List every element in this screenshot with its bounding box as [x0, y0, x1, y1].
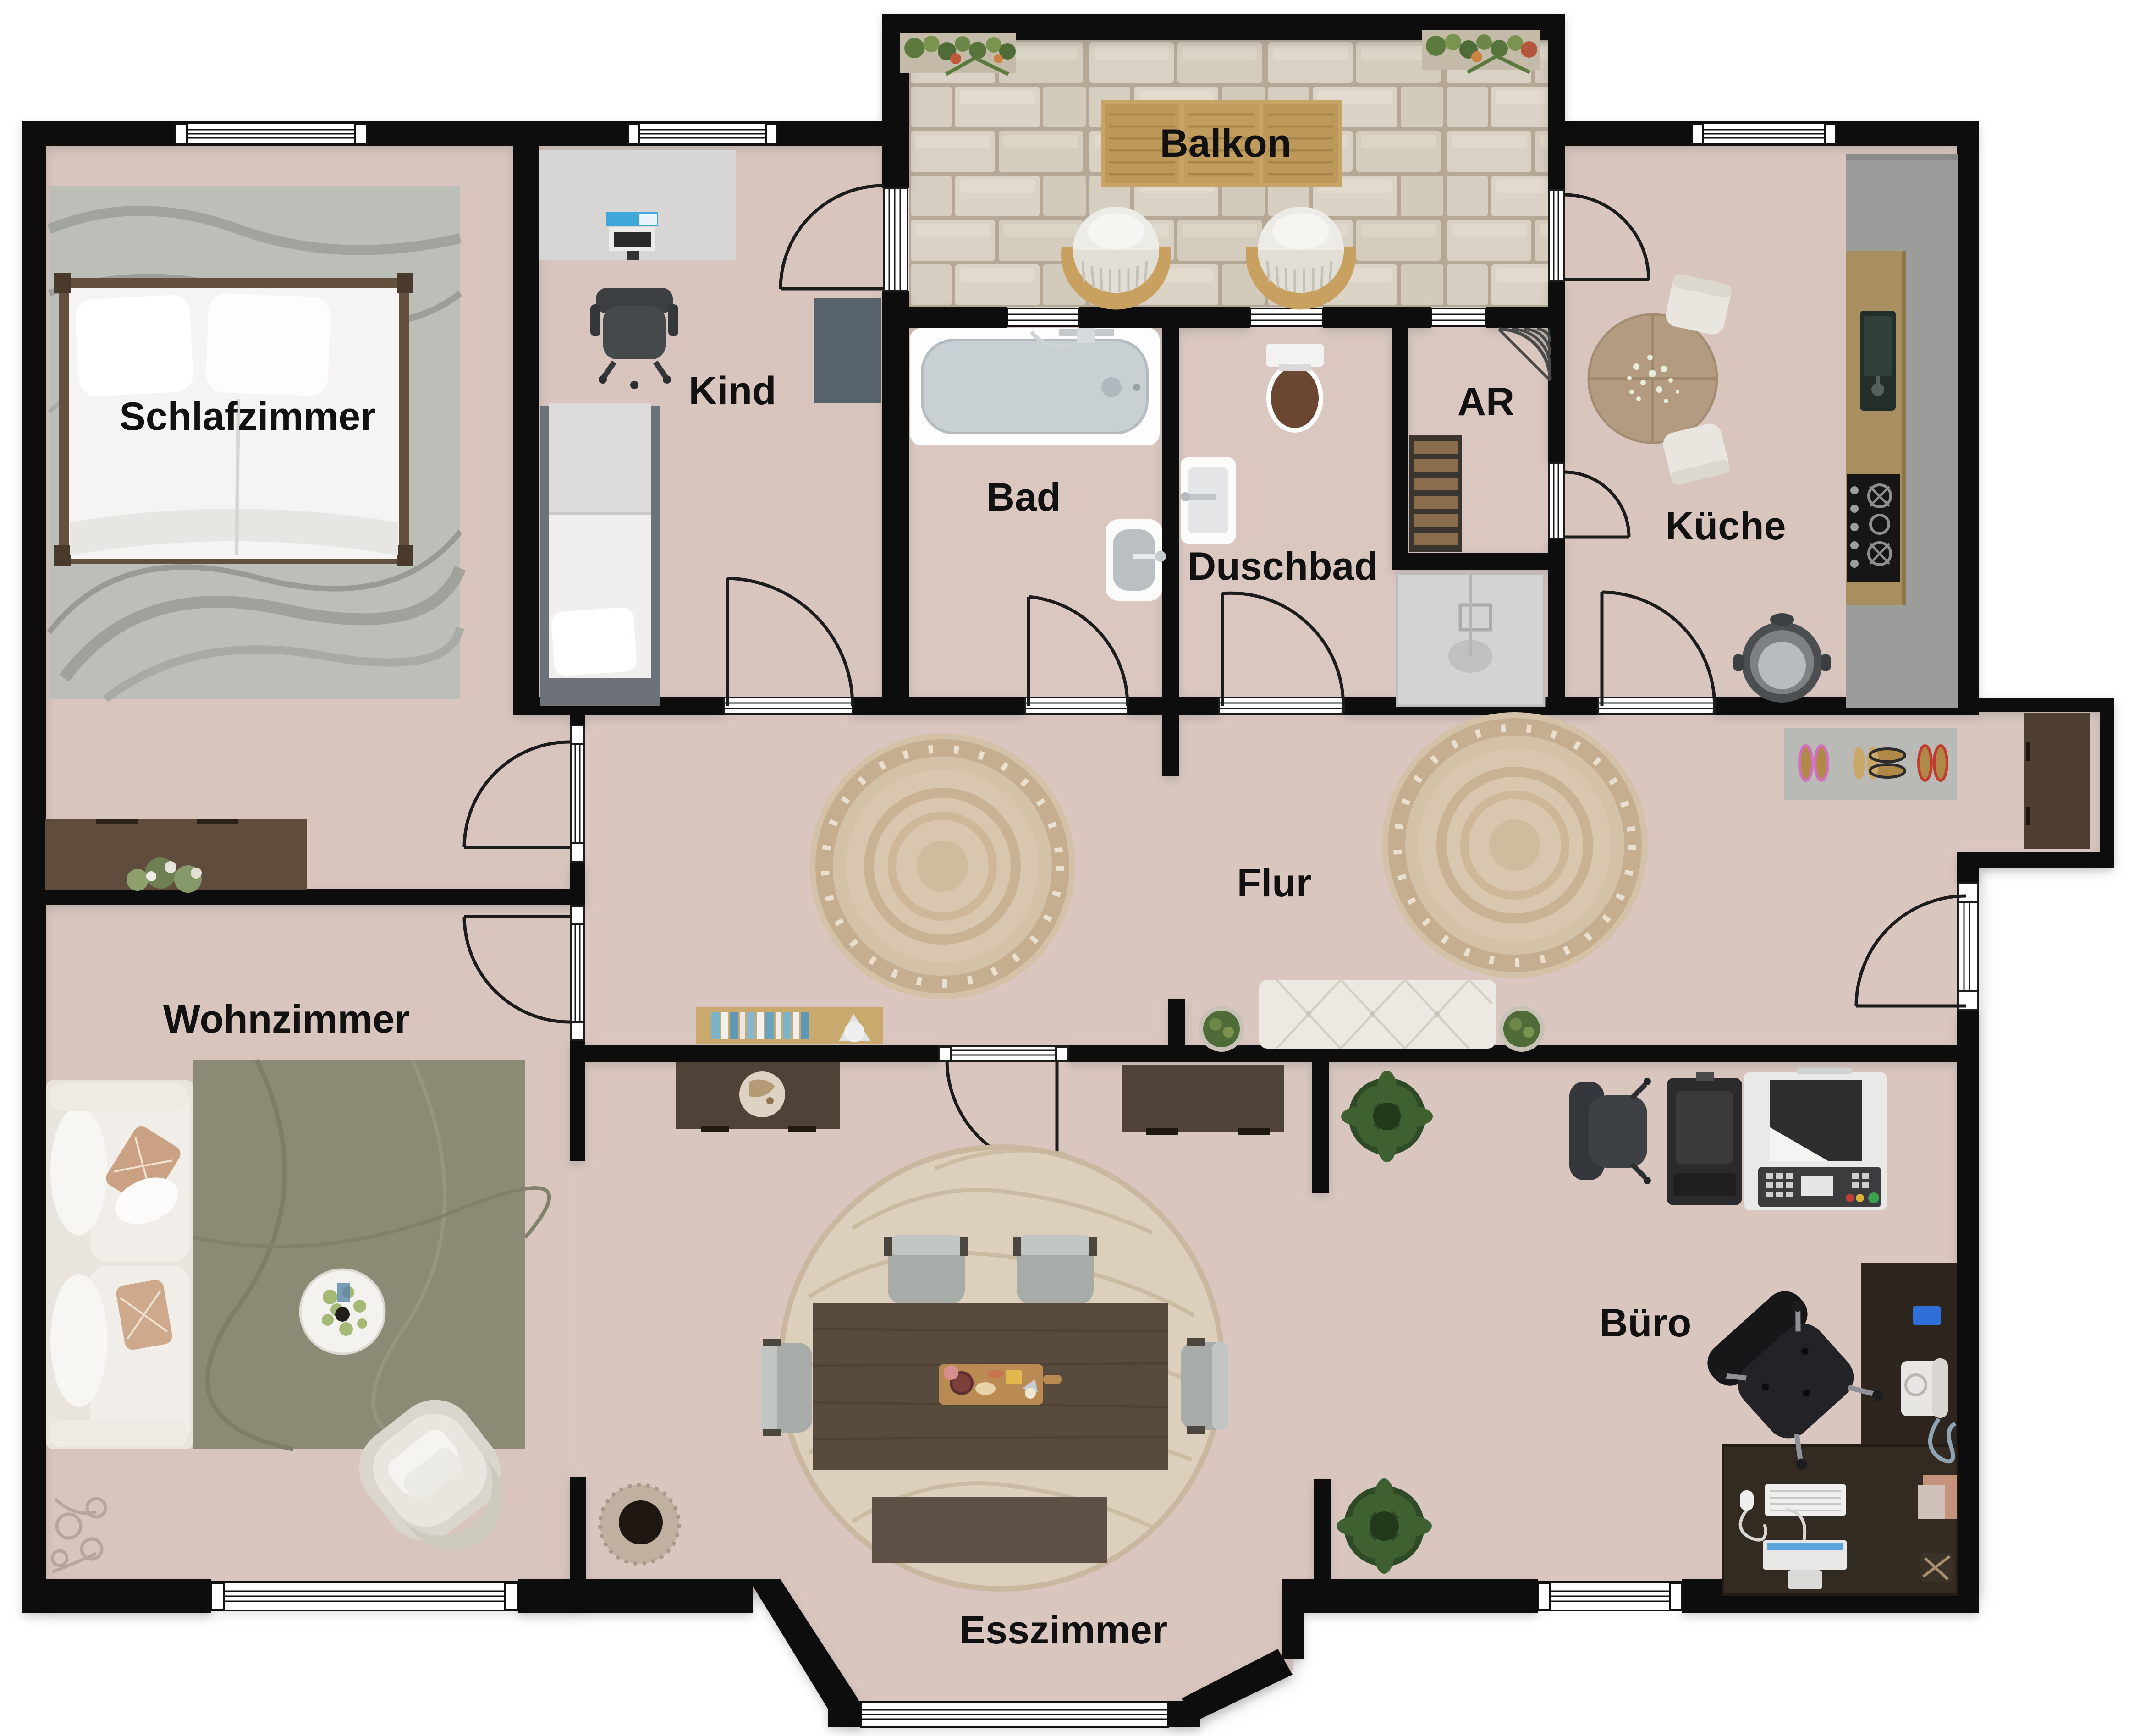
- svg-text:Duschbad: Duschbad: [1188, 544, 1378, 588]
- svg-text:Küche: Küche: [1666, 504, 1786, 548]
- svg-text:Wohnzimmer: Wohnzimmer: [163, 997, 410, 1041]
- svg-text:Flur: Flur: [1237, 861, 1311, 905]
- svg-text:Bad: Bad: [986, 475, 1061, 519]
- svg-text:Esszimmer: Esszimmer: [959, 1608, 1167, 1652]
- svg-text:Kind: Kind: [688, 369, 776, 413]
- svg-text:Schlafzimmer: Schlafzimmer: [119, 395, 375, 439]
- svg-text:Balkon: Balkon: [1160, 121, 1292, 165]
- svg-text:Büro: Büro: [1600, 1301, 1692, 1345]
- svg-text:AR: AR: [1458, 380, 1514, 424]
